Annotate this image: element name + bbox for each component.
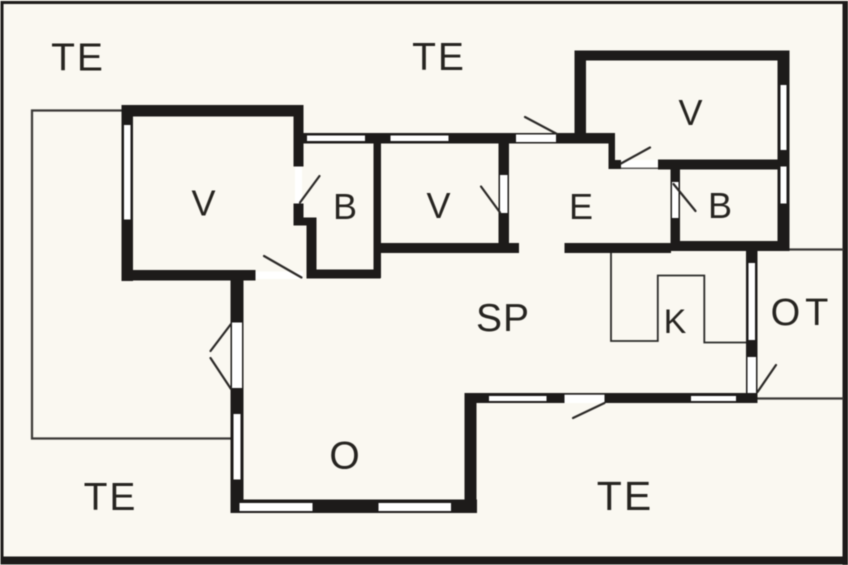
svg-text:SP: SP bbox=[476, 297, 530, 340]
svg-text:B: B bbox=[708, 185, 732, 226]
svg-text:K: K bbox=[664, 303, 687, 341]
svg-text:V: V bbox=[191, 183, 215, 224]
svg-text:O: O bbox=[329, 435, 359, 478]
svg-text:E: E bbox=[569, 186, 593, 227]
svg-text:TE: TE bbox=[412, 36, 466, 79]
svg-text:TE: TE bbox=[84, 476, 138, 519]
svg-text:TE: TE bbox=[597, 473, 653, 519]
svg-text:V: V bbox=[426, 185, 450, 226]
svg-text:TE: TE bbox=[51, 37, 105, 80]
svg-text:B: B bbox=[333, 186, 357, 227]
svg-text:OT: OT bbox=[771, 292, 834, 334]
svg-text:V: V bbox=[678, 92, 702, 133]
